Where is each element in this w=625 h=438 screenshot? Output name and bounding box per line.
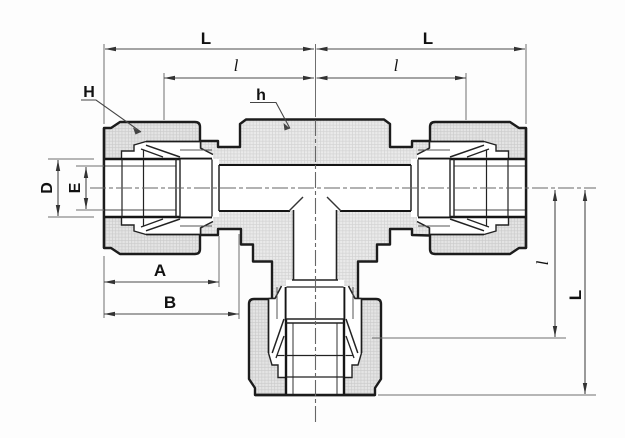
svg-text:B: B: [164, 293, 176, 312]
svg-text:D: D: [39, 182, 56, 194]
svg-text:H: H: [83, 84, 95, 101]
svg-text:l: l: [234, 56, 239, 75]
svg-text:A: A: [154, 261, 166, 280]
svg-text:L: L: [566, 290, 585, 300]
svg-text:l: l: [533, 260, 552, 265]
svg-text:L: L: [201, 29, 211, 48]
svg-text:h: h: [256, 87, 266, 104]
svg-text:l: l: [394, 56, 399, 75]
svg-text:L: L: [423, 29, 433, 48]
svg-text:E: E: [67, 182, 84, 193]
